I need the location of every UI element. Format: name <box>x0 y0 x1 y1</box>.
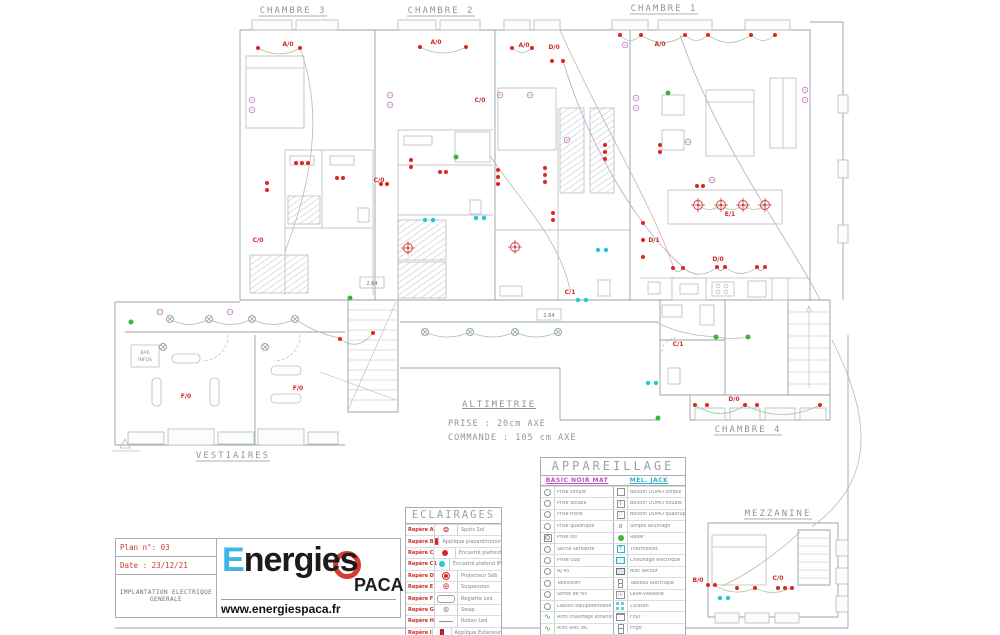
bouton-domo-quadruple-icon <box>613 510 628 520</box>
appareillage-row: Prise tripleBouton DOMO quadruple <box>541 509 685 520</box>
device-label: Alim élec WC <box>555 626 613 631</box>
appareillage-subheaders: BASIC NOIR MAT MEL. JACK <box>541 476 685 486</box>
tableau-electrique-icon <box>613 578 628 588</box>
circuit-label: C/0 <box>253 237 264 244</box>
brand-initial: E <box>222 541 244 579</box>
room-label-mezzanine: MEZZANINE <box>745 509 812 519</box>
device-label: Radar <box>628 535 685 540</box>
seche-serviette-icon <box>541 544 555 554</box>
dimension-label: 2.64 <box>366 281 377 287</box>
annex-box-label: INFOS <box>138 357 152 363</box>
prise-simple-icon <box>541 487 555 497</box>
room-label-chambre-1: CHAMBRE 1 <box>631 4 698 14</box>
partitions <box>285 88 714 384</box>
device-label: Télévision <box>555 581 613 586</box>
device-label: Sèche serviette <box>555 547 613 552</box>
room-label-vestiaires: VESTIAIRES <box>196 451 270 461</box>
appareillage-legend: APPAREILLAGE BASIC NOIR MAT MEL. JACK Pr… <box>540 457 686 635</box>
appareillage-row: RJ 45Bloc secour <box>541 566 685 577</box>
mel-jack-header: MEL. JACK <box>613 477 685 484</box>
circuit-label: E/1 <box>725 211 735 218</box>
device-label: Bouton DOMO double <box>628 501 685 506</box>
lave-vaisselle-icon <box>613 590 628 600</box>
fixture-label: Spots Sol <box>458 527 501 533</box>
device-label: Sortie de fils <box>555 592 613 597</box>
appareillage-row: TélévisionTableau électrique <box>541 577 685 588</box>
spots-sol-icon <box>434 525 458 535</box>
projecteur-icon <box>434 571 458 581</box>
applique-exterieur-icon <box>432 628 452 635</box>
circuit-label: F/0 <box>293 385 303 392</box>
title-block: Plan n°: 03 Date : 23/12/21 IMPLANTATION… <box>115 538 401 618</box>
alim-elec-wc-icon <box>541 624 555 634</box>
repere-label: Repère H <box>406 618 434 624</box>
altimetrie-title: ALTIMETRIE <box>462 400 576 410</box>
eclairages-row: Repère C1Encastré plafond IP <box>406 558 501 569</box>
bouton-domo-simple-icon <box>613 487 628 497</box>
bloc-secour-icon <box>613 567 628 577</box>
suspension-icon <box>434 582 458 592</box>
circuit-label: A/0 <box>282 41 293 48</box>
website-url: www.energiespaca.fr <box>221 599 396 616</box>
room-label-chambre-3: CHAMBRE 3 <box>260 6 327 16</box>
appareillage-row: Prise simpleBouton DOMO simple <box>541 486 685 497</box>
reglette-led-icon <box>434 593 458 603</box>
repere-label: Repère C <box>406 550 433 556</box>
altimetrie-line: COMMANDE : 105 cm AXE <box>448 433 576 443</box>
thermostat-icon <box>613 544 628 554</box>
device-label: Chauffage électrique <box>628 558 685 563</box>
device-label: Prise USB <box>555 558 613 563</box>
basic-noir-mat-header: BASIC NOIR MAT <box>541 477 613 484</box>
frigo-icon <box>613 624 628 634</box>
eclairages-title: ECLAIRAGES <box>406 508 501 524</box>
circuit-label: A/0 <box>654 41 665 48</box>
fixture-label: Encastré plafond IP <box>450 561 501 567</box>
circuit-labels: A/0 A/0 A/0 D/0 A/0 C/0 C/0 C/0 E/1 D/1 … <box>181 39 784 584</box>
circuit-label: A/0 <box>430 39 441 46</box>
eclairages-row: Repère CEncastré plafond <box>406 547 501 558</box>
circuit-label: F/0 <box>181 393 191 400</box>
cuisson-icon <box>613 601 628 611</box>
fixture-label: Projecteur Sdb <box>458 573 501 579</box>
device-label: Alim chauffage ethanol <box>555 615 613 620</box>
eclairages-row: Repère DProjecteur Sdb <box>406 570 501 581</box>
circuit-label: D/0 <box>712 256 723 263</box>
company-logo: Energies PACA www.energiespaca.fr <box>217 539 400 617</box>
device-label: RJ 45 <box>555 569 613 574</box>
circuit-label: A/0 <box>518 42 529 49</box>
floor-plan-sheet: CHAMBRE 3 CHAMBRE 2 CHAMBRE 1 VESTIAIRES… <box>0 0 1000 635</box>
repere-label: Repère B <box>406 539 434 545</box>
appareillage-row: Prise USBChauffage électrique <box>541 554 685 565</box>
suspension-symbols <box>401 198 772 255</box>
eclairages-row: Repère ASpots Sol <box>406 524 501 535</box>
circuit-label: B/0 <box>693 577 704 584</box>
device-label: Tableau électrique <box>628 581 685 586</box>
bouton-domo-double-icon <box>613 498 628 508</box>
fixture-label: Swap <box>458 607 501 613</box>
repere-label: Repère F <box>406 596 434 602</box>
device-label: Simple allumage <box>628 524 685 529</box>
fixture-label: Suspension <box>458 584 501 590</box>
brand-name: Energies <box>222 541 358 580</box>
simple-allumage-icon <box>613 521 628 531</box>
eclairages-row: Repère ESuspension <box>406 581 501 592</box>
circuit-label: C/0 <box>374 177 385 184</box>
title-block-info: Plan n°: 03 Date : 23/12/21 IMPLANTATION… <box>116 539 217 617</box>
repere-label: Repère A <box>406 527 434 533</box>
prise-triple-icon <box>541 510 555 520</box>
circuit-label: C/0 <box>475 97 486 104</box>
circuit-label: C/1 <box>673 341 684 348</box>
eclairages-row: Repère IApplique Exterieur <box>406 627 501 635</box>
repere-label: Repère G <box>406 607 434 613</box>
brand-region: PACA <box>354 575 404 596</box>
liaison-equipotentielle-icon <box>541 601 555 611</box>
repere-label: Repère E <box>406 584 434 590</box>
eclairages-row: Repère FReglette Led <box>406 592 501 603</box>
eclairages-row: Repère BApplique placard/miroir <box>406 535 501 546</box>
repere-label: Repère I <box>406 630 432 635</box>
circuit-label: C/0 <box>773 575 784 582</box>
device-label: Prise sol <box>555 535 613 540</box>
room-label-chambre-2: CHAMBRE 2 <box>408 6 475 16</box>
device-label: Bouton DOMO simple <box>628 490 685 495</box>
device-label: Thermostat <box>628 547 685 552</box>
eclairages-legend: ECLAIRAGES Repère ASpots Sol Repère BApp… <box>405 507 502 635</box>
appareillage-row: Prise doubleBouton DOMO double <box>541 497 685 508</box>
swap-icon <box>434 605 458 615</box>
plan-subtitle: IMPLANTATION ELECTRIQUE GENERALE <box>116 575 216 617</box>
eclairages-row: Repère GSwap <box>406 604 501 615</box>
device-label: Cuisson <box>628 604 685 609</box>
rj45-icon <box>541 567 555 577</box>
device-label: Lave-vaisselle <box>628 592 685 597</box>
device-label: Frigo <box>628 626 685 631</box>
device-label: Liaison équipotentielle <box>555 604 613 609</box>
repere-label: Repère D <box>406 573 434 579</box>
repere-label: Repère C1 <box>406 561 434 567</box>
device-label: Four <box>628 615 685 620</box>
eclairages-row: Repère HRuban Led <box>406 615 501 626</box>
swap-symbols <box>160 316 562 351</box>
circuit-label: D/0 <box>728 396 739 403</box>
altimetrie-line: PRISE : 20cm AXE <box>448 419 576 429</box>
device-label: Bloc secour <box>628 569 685 574</box>
room-label-chambre-4: CHAMBRE 4 <box>715 425 782 435</box>
fixture-label: Ruban Led <box>458 618 501 624</box>
device-label: Prise quadruple <box>555 524 613 529</box>
appareillage-row: Sortie de filsLave-vaisselle <box>541 589 685 600</box>
circuit-label: C/1 <box>565 289 576 296</box>
chauffage-electrique-icon <box>613 555 628 565</box>
device-label: Prise simple <box>555 490 613 495</box>
appareillage-row: Liaison équipotentielleCuisson <box>541 600 685 611</box>
prise-double-icon <box>541 498 555 508</box>
encastre-plafond-ip-icon <box>434 559 450 569</box>
device-label: Prise double <box>555 501 613 506</box>
plan-subtitle-line: IMPLANTATION ELECTRIQUE <box>120 589 212 596</box>
circuit-label: D/1 <box>648 237 659 244</box>
annex-box-label: BAR <box>140 350 149 356</box>
prise-sol-icon <box>541 533 555 543</box>
altimetrie-block: ALTIMETRIE PRISE : 20cm AXE COMMANDE : 1… <box>448 400 576 443</box>
appareillage-title: APPAREILLAGE <box>541 458 685 476</box>
ruban-led-icon <box>434 616 458 626</box>
alim-chauffage-ethanol-icon <box>541 612 555 622</box>
dimension-label: 2.64 <box>543 313 554 319</box>
prise-usb-icon <box>541 555 555 565</box>
appareillage-row: Prise solRadar <box>541 532 685 543</box>
four-icon <box>613 612 628 622</box>
door-arcs <box>202 335 676 361</box>
fixture-label: Reglette Led <box>458 596 501 602</box>
plan-subtitle-line: GENERALE <box>150 596 182 603</box>
fixture-label: Applique Exterieur <box>452 630 501 635</box>
plan-date: Date : 23/12/21 <box>116 557 216 575</box>
encastre-plafond-icon <box>433 548 455 558</box>
prise-quadruple-icon <box>541 521 555 531</box>
fixture-label: Applique placard/miroir <box>439 539 501 545</box>
television-icon <box>541 578 555 588</box>
fixture-label: Encastré plafond <box>456 550 501 556</box>
appareillage-row: Prise quadrupleSimple allumage <box>541 520 685 531</box>
plan-number: Plan n°: 03 <box>116 539 216 557</box>
appareillage-row: Sèche servietteThermostat <box>541 543 685 554</box>
appareillage-row: Alim élec WCFrigo <box>541 623 685 634</box>
device-label: Bouton DOMO quadruple <box>628 512 685 517</box>
appareillage-row: Alim chauffage ethanolFour <box>541 611 685 622</box>
furniture <box>112 56 808 585</box>
circuit-label: D/0 <box>548 44 559 51</box>
sortie-de-fils-icon <box>541 590 555 600</box>
ceiling-light-dots <box>256 33 822 590</box>
brand-rest: nergies <box>244 541 358 579</box>
device-label: Prise triple <box>555 512 613 517</box>
radar-icon <box>613 533 628 543</box>
